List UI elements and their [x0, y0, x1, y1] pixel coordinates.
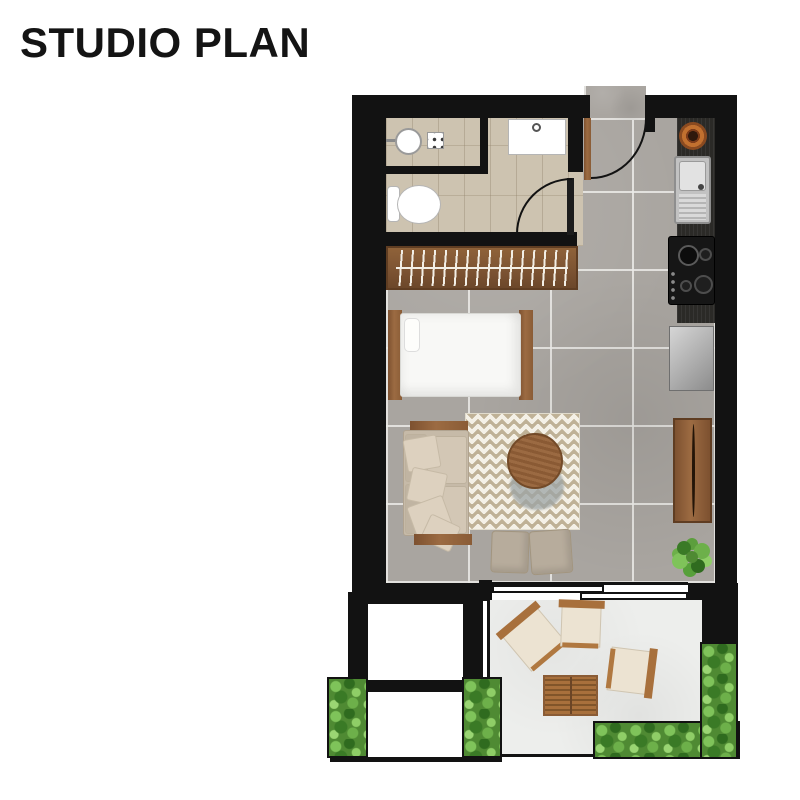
stove-burner-kettle — [678, 245, 699, 266]
sink-faucet — [698, 184, 704, 190]
bathroom-wall-bottom — [386, 232, 577, 246]
sofa-throw-pillow-1 — [402, 434, 441, 472]
bed-footboard — [519, 310, 533, 400]
terrace-chair-2 — [560, 601, 602, 647]
terrace-chair-3 — [606, 646, 655, 695]
entry-door-panel — [584, 118, 591, 180]
stove-burner-3 — [680, 280, 692, 292]
stove-burner-4 — [694, 275, 713, 294]
indoor-plant — [686, 551, 698, 563]
stove-knobs — [670, 270, 676, 303]
wall-top-left — [352, 95, 590, 118]
sliding-door-panel-2 — [580, 592, 688, 600]
copper-bowl — [679, 122, 707, 150]
bathroom-wall-right — [568, 118, 583, 172]
vanity-faucet — [532, 123, 541, 132]
bathroom-partition-vertical — [480, 118, 488, 174]
refrigerator — [669, 326, 714, 391]
bathroom-partition-horizontal — [386, 166, 488, 174]
planter-void-left — [327, 677, 368, 758]
sink-drainboard — [679, 194, 706, 220]
round-coffee-table — [507, 433, 563, 489]
entry-threshold-floor — [584, 86, 646, 120]
toilet-bowl — [397, 185, 441, 224]
planter-void-right — [462, 677, 502, 758]
folding-wall-table — [673, 418, 712, 523]
sofa-frame-bottom — [414, 534, 472, 545]
gas-stove — [668, 236, 715, 305]
stove-burner-2 — [699, 248, 712, 261]
shower-drain-icon — [427, 132, 444, 149]
kitchen-sink-unit — [674, 156, 711, 224]
ottoman-1 — [490, 530, 529, 573]
ottoman-2 — [529, 529, 574, 576]
planter-terrace-right — [700, 642, 738, 759]
studio-plan-page: STUDIO PLAN — [0, 0, 800, 800]
terrace-table — [543, 675, 598, 716]
void-interior — [368, 604, 463, 680]
floor-plan — [0, 0, 800, 800]
shower-basin — [395, 128, 422, 155]
wall-left — [352, 95, 386, 600]
wall-right — [715, 95, 737, 600]
bed-pillow — [404, 318, 420, 352]
wardrobe-hangers — [392, 250, 572, 286]
